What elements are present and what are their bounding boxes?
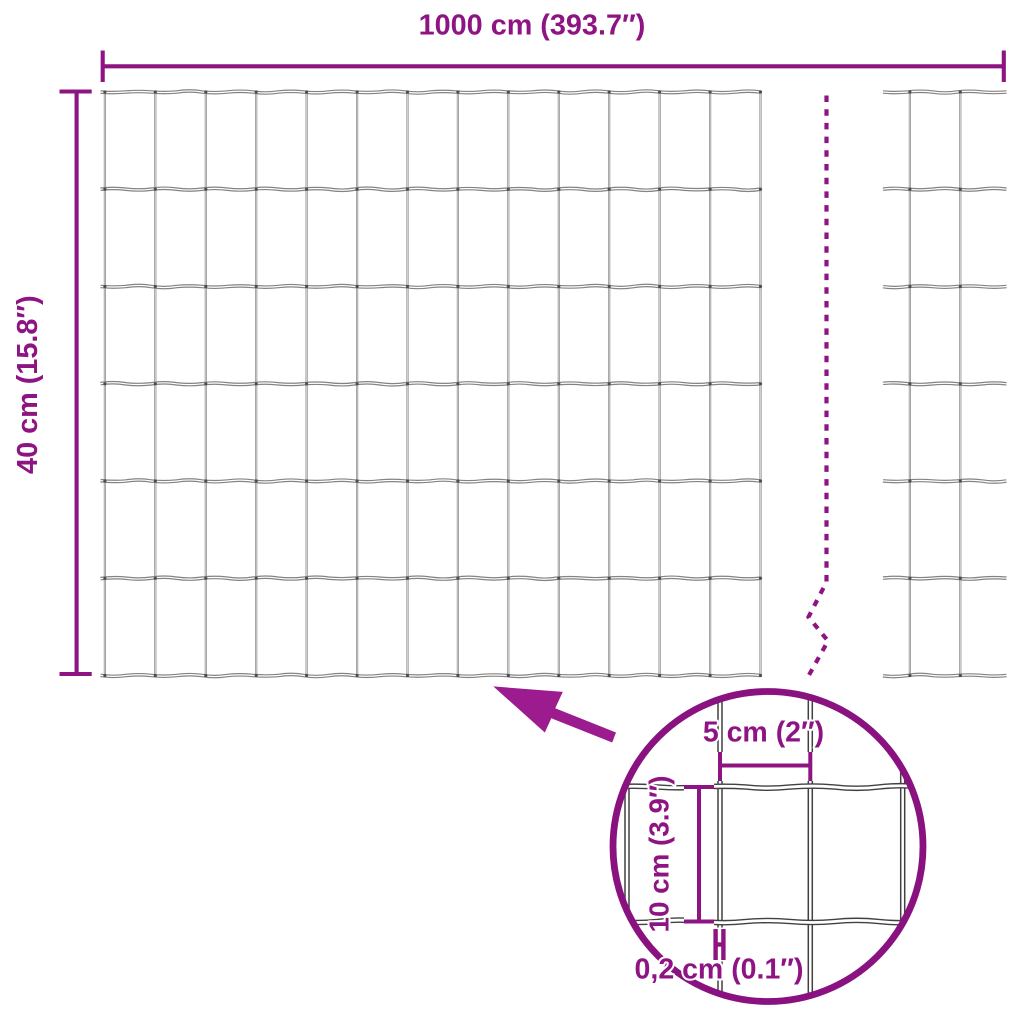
svg-text:1000 cm (393.7″): 1000 cm (393.7″) xyxy=(419,9,646,41)
svg-text:5 cm (2″): 5 cm (2″) xyxy=(703,716,824,748)
svg-text:40 cm (15.8″): 40 cm (15.8″) xyxy=(12,295,44,474)
svg-text:0,2 cm (0.1″): 0,2 cm (0.1″) xyxy=(635,954,804,986)
svg-text:10 cm (3.9″): 10 cm (3.9″) xyxy=(644,775,675,932)
